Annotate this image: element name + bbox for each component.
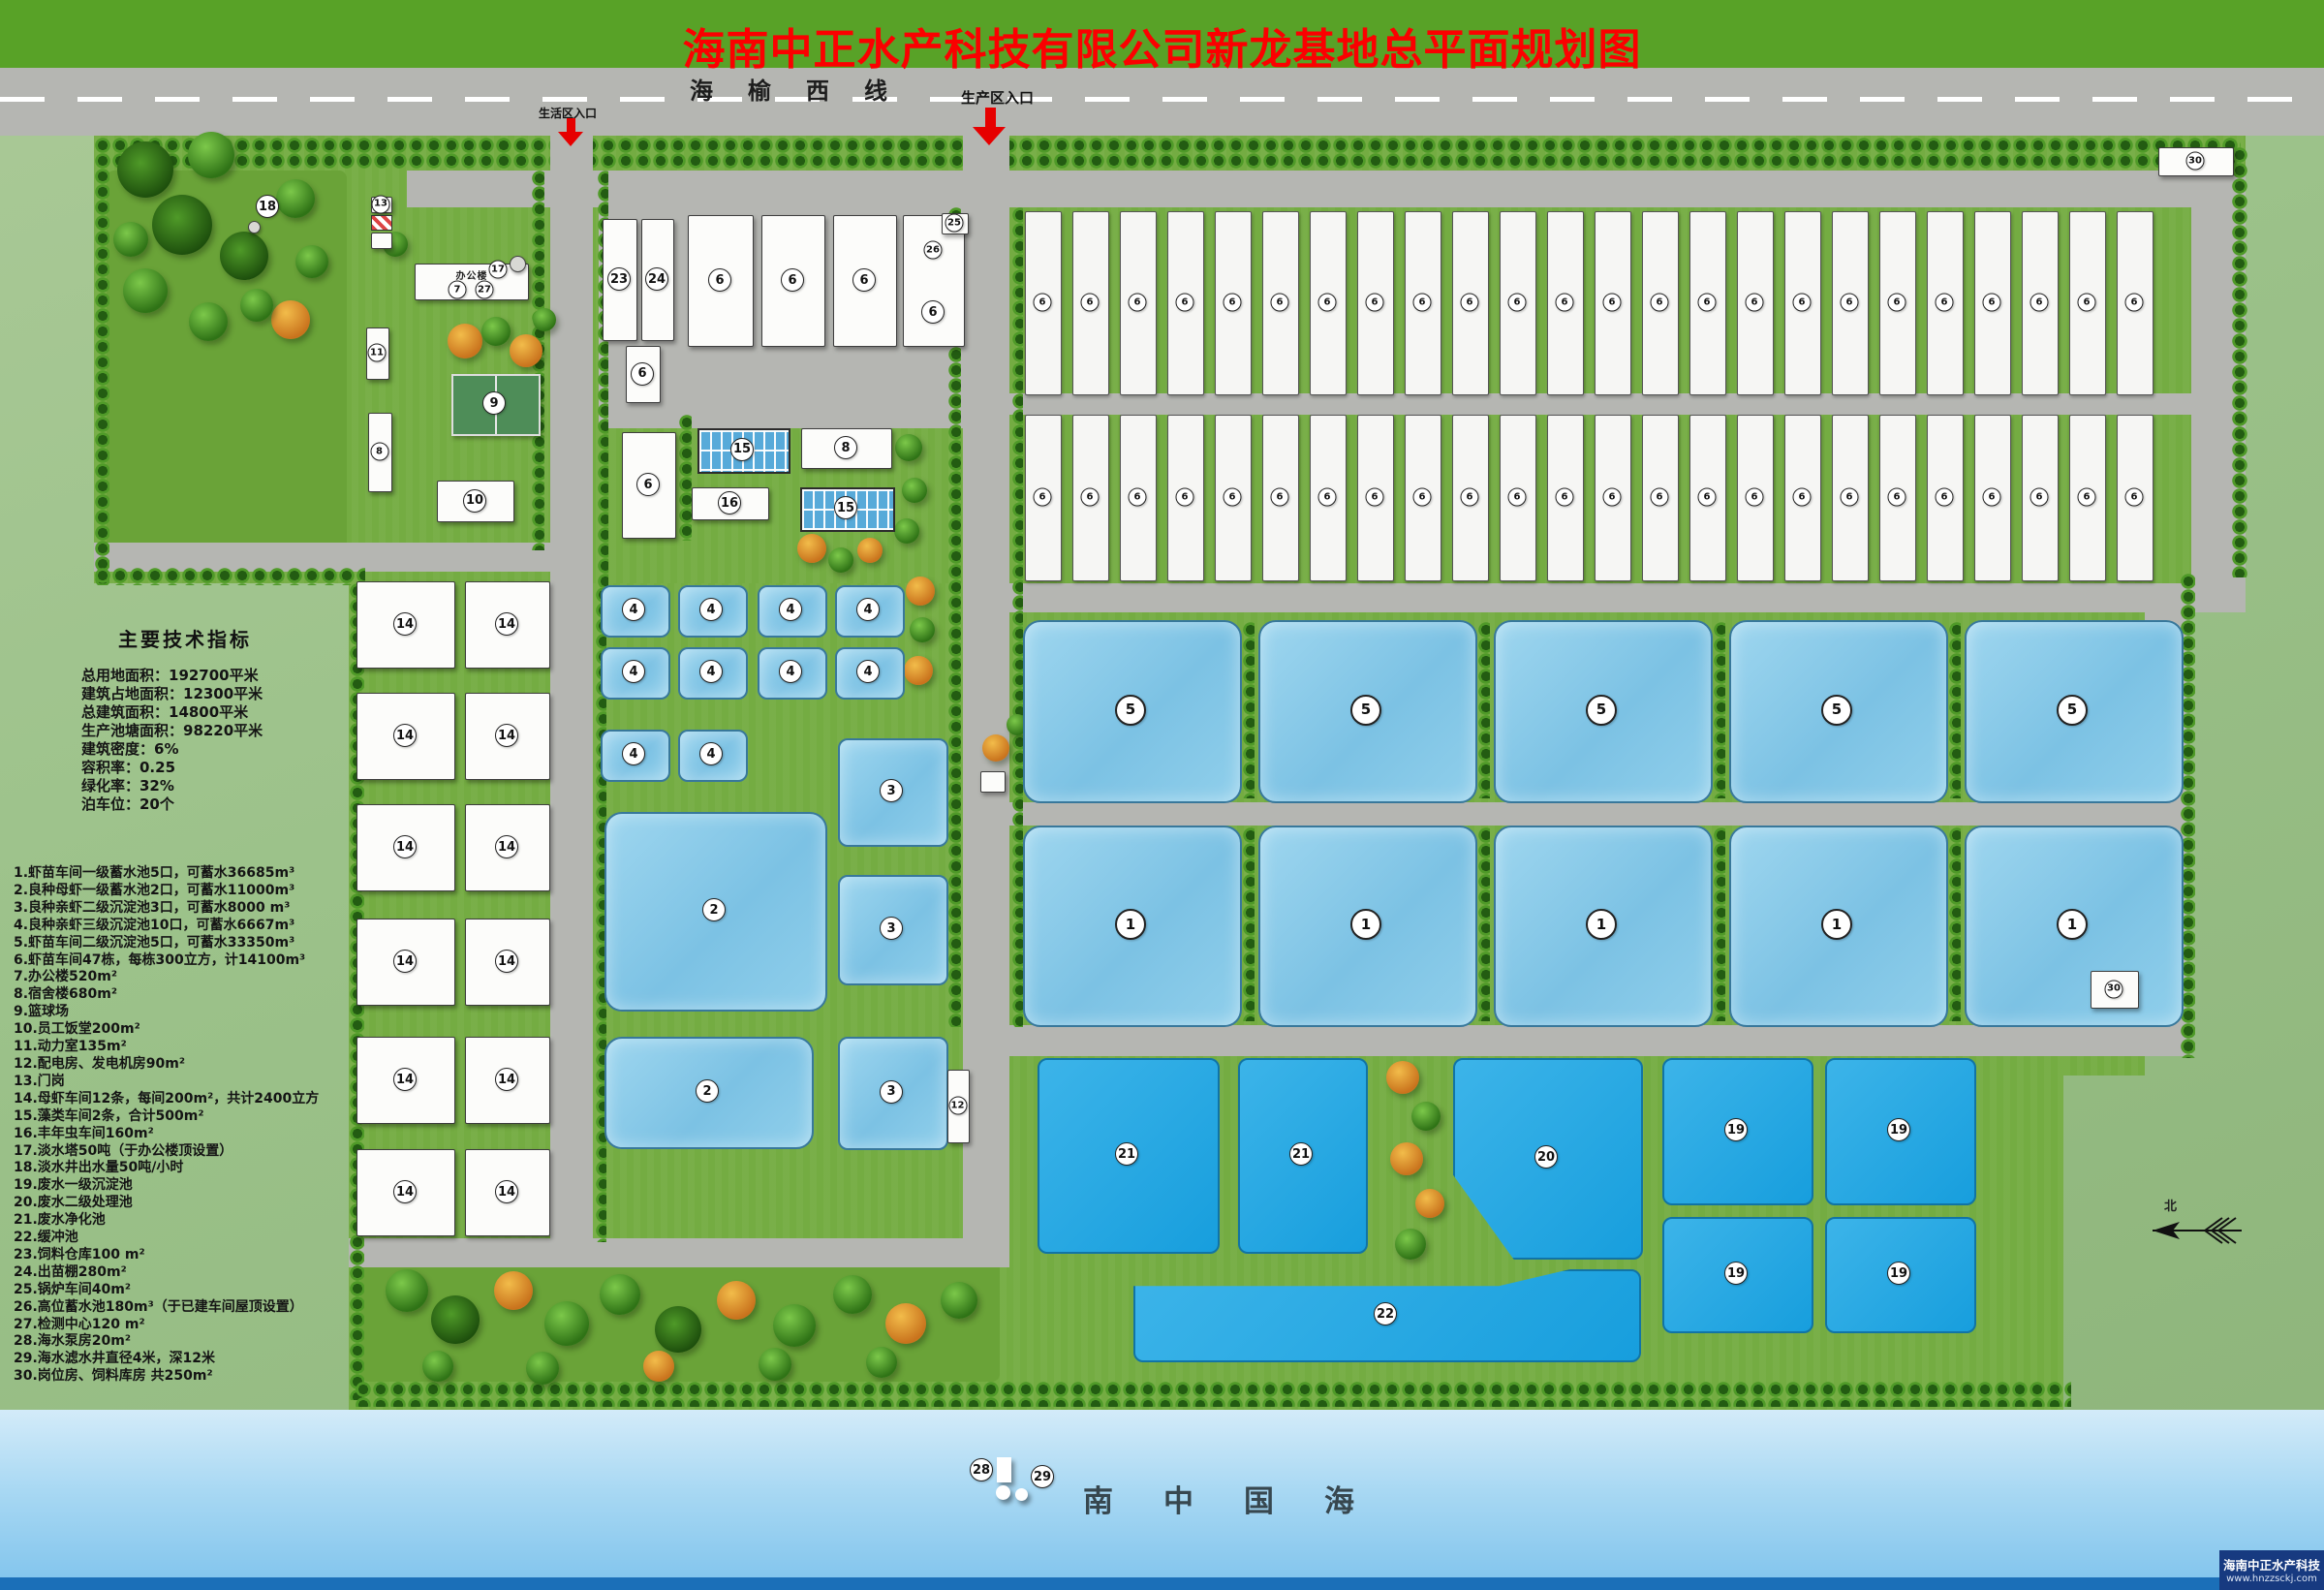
tech-indicators-header: 主要技术指标 xyxy=(118,624,252,652)
tree-line xyxy=(1242,622,1255,798)
feature-label-14: 14 xyxy=(495,612,518,636)
feature-label-6: 6 xyxy=(1651,488,1669,507)
entrance-production-label: 生产区入口 xyxy=(961,87,1034,108)
tree-line xyxy=(1242,827,1255,1021)
feature-label-6: 6 xyxy=(1936,488,1954,507)
tree-icon xyxy=(643,1351,674,1382)
tree-line xyxy=(94,169,109,585)
tree-icon xyxy=(902,478,927,503)
road xyxy=(1009,393,2246,415)
tree-icon xyxy=(885,1303,926,1344)
feature-label-15: 15 xyxy=(730,438,754,461)
tree-line xyxy=(1477,622,1490,798)
entrance-living-arrowhead-icon xyxy=(558,132,583,146)
feature-label-6: 6 xyxy=(1746,294,1764,312)
sea-name: 南中国海 xyxy=(1083,1477,1405,1520)
feature-label-6: 6 xyxy=(1698,294,1717,312)
feature-label-14: 14 xyxy=(495,724,518,747)
feature-label-6: 6 xyxy=(1413,488,1432,507)
feature-label-6: 6 xyxy=(1936,294,1954,312)
tree-icon xyxy=(276,179,315,218)
feature-label-6: 6 xyxy=(852,268,876,292)
feature-label-6: 6 xyxy=(1176,294,1194,312)
feature-label-19: 19 xyxy=(1724,1118,1748,1141)
feature-label-6: 6 xyxy=(1888,294,1906,312)
tree-line xyxy=(94,568,365,585)
feature-label-6: 6 xyxy=(781,268,804,292)
feature-label-5: 5 xyxy=(2057,695,2088,726)
feature-label-27: 27 xyxy=(476,281,494,299)
feature-label-5: 5 xyxy=(1586,695,1617,726)
tech-indicators-body: 总用地面积：192700平米 建筑占地面积：12300平米 总建筑面积：1480… xyxy=(81,667,263,814)
tree-icon xyxy=(982,734,1009,762)
tree-icon xyxy=(123,268,168,313)
feature-label-6: 6 xyxy=(1129,488,1147,507)
tree-icon xyxy=(220,232,268,280)
tree-icon xyxy=(866,1347,897,1378)
feature-label-3: 3 xyxy=(880,1080,903,1104)
feature-label-6: 6 xyxy=(1461,294,1479,312)
tree-icon xyxy=(910,617,935,642)
feature-label-14: 14 xyxy=(495,1180,518,1203)
feature-label-6: 6 xyxy=(1176,488,1194,507)
tree-icon xyxy=(494,1271,533,1310)
feature-label-6: 6 xyxy=(2078,294,2096,312)
feature-label-6: 6 xyxy=(1413,294,1432,312)
tree-icon xyxy=(533,308,556,331)
feature-label-6: 6 xyxy=(1746,488,1764,507)
feature-label-19: 19 xyxy=(1887,1262,1910,1285)
tree-icon xyxy=(448,324,482,359)
marker-28: 28 xyxy=(970,1458,993,1481)
tree-line xyxy=(1713,622,1725,798)
feature-label-6: 6 xyxy=(1841,488,1859,507)
feature-label-6: 6 xyxy=(1556,488,1574,507)
feature-label-14: 14 xyxy=(393,835,417,858)
feature-label-30: 30 xyxy=(2105,980,2123,998)
feature-label-13: 13 xyxy=(372,195,390,213)
feature-label-25: 25 xyxy=(945,214,964,233)
feature-label-5: 5 xyxy=(1115,695,1146,726)
tree-icon xyxy=(904,656,933,685)
road xyxy=(407,171,2246,207)
tree-icon xyxy=(431,1295,480,1344)
logo: 海南中正水产科技 www.hnzzsckj.com xyxy=(2219,1550,2324,1590)
marker-29: 29 xyxy=(1031,1465,1054,1488)
feature-label-12: 12 xyxy=(948,1097,967,1115)
feature-label-14: 14 xyxy=(393,612,417,636)
feature-label-4: 4 xyxy=(622,742,645,765)
tree-icon xyxy=(189,302,228,341)
entrance-production-arrowhead-icon xyxy=(973,127,1006,145)
building xyxy=(980,771,1006,793)
feature-label-4: 4 xyxy=(856,598,880,621)
feature-label-4: 4 xyxy=(622,660,645,683)
tree-icon xyxy=(510,334,542,367)
building xyxy=(371,215,392,231)
feature-label-6: 6 xyxy=(1081,488,1100,507)
feature-label-6: 6 xyxy=(708,268,731,292)
tree-icon xyxy=(481,317,511,346)
tree-icon xyxy=(188,132,234,178)
tree-icon xyxy=(113,222,148,257)
feature-label-6: 6 xyxy=(2125,294,2144,312)
feature-label-4: 4 xyxy=(699,598,723,621)
road xyxy=(1009,802,2191,826)
feature-label-6: 6 xyxy=(1603,294,1622,312)
feature-label-22: 22 xyxy=(1374,1302,1397,1325)
feature-label-7: 7 xyxy=(449,281,467,299)
feature-label-6: 6 xyxy=(1081,294,1100,312)
freshwater-well-18 xyxy=(248,221,261,234)
feature-label-4: 4 xyxy=(779,660,802,683)
tree-line xyxy=(94,138,2241,169)
tree-icon xyxy=(941,1282,977,1319)
tree-icon xyxy=(1395,1229,1426,1260)
feature-label-1: 1 xyxy=(2057,909,2088,940)
feature-label-5: 5 xyxy=(1821,695,1852,726)
feature-label-6: 6 xyxy=(2125,488,2144,507)
feature-label-6: 6 xyxy=(1508,488,1527,507)
sea-pump-house-icon xyxy=(997,1457,1011,1482)
tree-icon xyxy=(895,434,922,461)
feature-label-6: 6 xyxy=(1603,488,1622,507)
feature-label-6: 6 xyxy=(921,300,945,324)
feature-label-21: 21 xyxy=(1289,1142,1313,1166)
feature-label-1: 1 xyxy=(1115,909,1146,940)
feature-label-6: 6 xyxy=(636,473,660,496)
tree-line xyxy=(1713,827,1725,1021)
feature-label-2: 2 xyxy=(702,898,726,921)
tree-line xyxy=(1477,827,1490,1021)
tree-icon xyxy=(544,1301,589,1346)
feature-label-4: 4 xyxy=(699,742,723,765)
feature-label-30: 30 xyxy=(2186,152,2205,171)
feature-label-6: 6 xyxy=(1556,294,1574,312)
feature-label-11: 11 xyxy=(368,344,387,362)
feature-label-6: 6 xyxy=(1129,294,1147,312)
feature-label-10: 10 xyxy=(463,489,486,513)
feature-label-6: 6 xyxy=(1983,294,2001,312)
feature-label-17: 17 xyxy=(489,261,508,279)
feature-label-1: 1 xyxy=(1586,909,1617,940)
tree-icon xyxy=(828,547,853,573)
feature-label-6: 6 xyxy=(1224,294,1242,312)
feature-label-6: 6 xyxy=(1508,294,1527,312)
feature-label-8: 8 xyxy=(834,436,857,459)
road xyxy=(963,1025,2191,1056)
building xyxy=(371,233,392,249)
feature-label-6: 6 xyxy=(1651,294,1669,312)
feature-label-6: 6 xyxy=(1318,294,1337,312)
feature-label-14: 14 xyxy=(495,1068,518,1091)
feature-label-3: 3 xyxy=(880,917,903,940)
tree-icon xyxy=(773,1304,816,1347)
road xyxy=(963,583,2246,612)
feature-label-6: 6 xyxy=(2078,488,2096,507)
road xyxy=(550,136,593,1240)
road xyxy=(349,1238,1009,1267)
water-tower-17 xyxy=(510,256,526,272)
tree-icon xyxy=(797,534,826,563)
feature-label-14: 14 xyxy=(495,950,518,973)
feature-label-21: 21 xyxy=(1115,1142,1138,1166)
site-plan-canvas: 6666666666666666666666666666666666666666… xyxy=(0,0,2324,1590)
tree-icon xyxy=(295,245,328,278)
feature-label-14: 14 xyxy=(393,724,417,747)
feature-label-5: 5 xyxy=(1350,695,1381,726)
feature-label-6: 6 xyxy=(1271,294,1289,312)
feature-label-19: 19 xyxy=(1724,1262,1748,1285)
legend-list: 1.虾苗车间一级蓄水池5口，可蓄水36685m³ 2.良种母虾一级蓄水池2口，可… xyxy=(14,865,420,1386)
feature-label-6: 6 xyxy=(1034,294,1052,312)
page-title: 海南中正水产科技有限公司新龙基地总平面规划图 xyxy=(0,15,2324,77)
compass-icon xyxy=(2149,1209,2246,1252)
feature-label-16: 16 xyxy=(718,491,741,514)
tree-icon xyxy=(117,141,173,198)
tree-line xyxy=(2231,147,2248,577)
tree-icon xyxy=(1390,1142,1423,1175)
tree-icon xyxy=(422,1351,453,1382)
logo-company: 海南中正水产科技 xyxy=(2219,1555,2324,1574)
logo-url: www.hnzzsckj.com xyxy=(2219,1574,2324,1584)
feature-label-3: 3 xyxy=(880,779,903,802)
feature-label-26: 26 xyxy=(924,241,943,260)
tree-icon xyxy=(759,1348,791,1381)
tree-icon xyxy=(1411,1102,1441,1131)
road xyxy=(963,136,1009,1267)
feature-label-6: 6 xyxy=(2030,294,2049,312)
feature-label-6: 6 xyxy=(631,362,654,386)
feature-label-2: 2 xyxy=(696,1079,719,1103)
feature-label-6: 6 xyxy=(1698,488,1717,507)
feature-label-6: 6 xyxy=(1271,488,1289,507)
tree-icon xyxy=(894,518,919,544)
feature-label-23: 23 xyxy=(607,267,631,291)
feature-label-6: 6 xyxy=(2030,488,2049,507)
feature-label-24: 24 xyxy=(645,267,668,291)
feature-label-4: 4 xyxy=(856,660,880,683)
feature-label-4: 4 xyxy=(622,598,645,621)
feature-label-8: 8 xyxy=(370,443,388,461)
tree-line xyxy=(355,1382,2071,1407)
feature-label-9: 9 xyxy=(482,391,506,415)
feature-label-4: 4 xyxy=(779,598,802,621)
tree-icon xyxy=(857,538,883,563)
feature-label-15: 15 xyxy=(834,496,857,519)
tree-icon xyxy=(526,1352,559,1385)
feature-label-18: 18 xyxy=(256,195,279,218)
feature-label-4: 4 xyxy=(699,660,723,683)
tree-icon xyxy=(271,300,310,339)
feature-label-1: 1 xyxy=(1350,909,1381,940)
tree-icon xyxy=(655,1306,701,1353)
tree-icon xyxy=(1415,1189,1444,1218)
feature-label-14: 14 xyxy=(495,835,518,858)
feature-label-6: 6 xyxy=(1034,488,1052,507)
tree-icon xyxy=(600,1274,640,1315)
sea-filter-well-icon xyxy=(1015,1488,1028,1501)
feature-label-6: 6 xyxy=(1461,488,1479,507)
sea-filter-well-icon xyxy=(996,1485,1010,1500)
feature-label-6: 6 xyxy=(1318,488,1337,507)
highway-name: 海榆西线 xyxy=(690,72,922,106)
tree-line xyxy=(1948,622,1961,798)
tree-line xyxy=(1948,827,1961,1021)
site-area xyxy=(2063,1056,2145,1076)
tree-icon xyxy=(906,577,935,606)
tree-line xyxy=(678,415,692,541)
feature-label-1: 1 xyxy=(1821,909,1852,940)
feature-label-19: 19 xyxy=(1887,1118,1910,1141)
tree-icon xyxy=(240,289,273,322)
tree-icon xyxy=(833,1275,872,1314)
feature-label-20: 20 xyxy=(1534,1145,1558,1169)
tree-icon xyxy=(152,195,212,255)
entrance-production-arrow-icon xyxy=(985,108,996,127)
feature-label-6: 6 xyxy=(1224,488,1242,507)
feature-label-6: 6 xyxy=(1983,488,2001,507)
feature-label-6: 6 xyxy=(1888,488,1906,507)
feature-label-6: 6 xyxy=(1366,294,1384,312)
feature-label-6: 6 xyxy=(1841,294,1859,312)
feature-label-6: 6 xyxy=(1793,294,1812,312)
feature-label-6: 6 xyxy=(1793,488,1812,507)
highway-centerline xyxy=(0,97,2324,102)
tree-icon xyxy=(717,1281,756,1320)
tree-icon xyxy=(1386,1061,1419,1094)
building-6 xyxy=(903,215,965,347)
feature-label-6: 6 xyxy=(1366,488,1384,507)
tree-line xyxy=(1011,207,1023,1027)
sea-bottom-bar xyxy=(0,1577,2324,1590)
entrance-living-arrow-icon xyxy=(567,118,575,132)
